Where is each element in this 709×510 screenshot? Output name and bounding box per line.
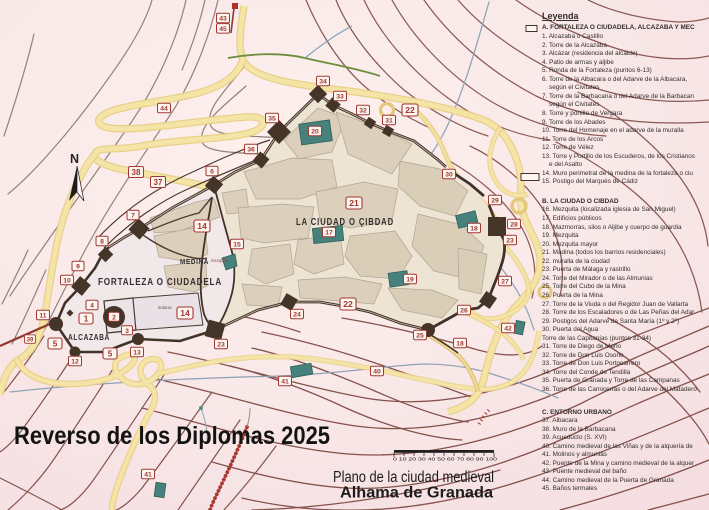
svg-text:33: 33 xyxy=(336,94,344,101)
svg-text:18: 18 xyxy=(470,226,478,233)
svg-text:30: 30 xyxy=(445,172,453,179)
svg-text:mezquita: mezquita xyxy=(211,258,229,263)
svg-text:0 10 20 30 40 50 60 70 80 90 1: 0 10 20 30 40 50 60 70 80 90 100 xyxy=(393,457,498,462)
svg-text:4: 4 xyxy=(90,303,94,310)
svg-text:22: 22 xyxy=(343,299,353,309)
svg-text:MEDINA: MEDINA xyxy=(180,257,209,266)
svg-text:17: 17 xyxy=(325,230,333,237)
svg-text:6: 6 xyxy=(210,169,214,176)
svg-text:5: 5 xyxy=(108,350,113,359)
svg-text:38: 38 xyxy=(132,168,141,177)
svg-text:35: 35 xyxy=(268,116,276,123)
svg-text:25: 25 xyxy=(416,333,424,340)
svg-text:32: 32 xyxy=(359,108,367,115)
svg-text:13: 13 xyxy=(133,350,141,357)
svg-text:10: 10 xyxy=(63,278,71,285)
svg-text:N: N xyxy=(70,152,79,166)
svg-text:42: 42 xyxy=(504,326,512,333)
svg-text:20: 20 xyxy=(311,129,319,136)
svg-text:solana: solana xyxy=(158,305,172,310)
svg-text:14: 14 xyxy=(180,308,190,318)
svg-text:8: 8 xyxy=(100,239,104,246)
svg-text:44: 44 xyxy=(160,106,168,113)
svg-text:5: 5 xyxy=(53,340,58,349)
svg-text:36: 36 xyxy=(247,147,255,154)
svg-text:31: 31 xyxy=(385,118,393,125)
svg-text:27: 27 xyxy=(501,279,509,286)
svg-text:3: 3 xyxy=(125,328,129,335)
svg-text:11: 11 xyxy=(39,313,46,320)
svg-text:28: 28 xyxy=(510,222,518,229)
svg-text:24: 24 xyxy=(293,312,301,319)
svg-text:26: 26 xyxy=(460,308,468,315)
svg-text:Plano de la ciudad medieval: Plano de la ciudad medieval xyxy=(333,469,494,486)
svg-text:2: 2 xyxy=(112,314,116,321)
svg-text:ALCAZABA: ALCAZABA xyxy=(68,333,110,342)
svg-text:Alhama de Granada: Alhama de Granada xyxy=(340,485,493,502)
svg-text:LA CIUDAD O ÇIBDAD: LA CIUDAD O ÇIBDAD xyxy=(296,217,394,228)
svg-text:34: 34 xyxy=(319,79,327,86)
svg-text:37: 37 xyxy=(154,178,163,187)
svg-text:Reverso de los Diplomas 2025: Reverso de los Diplomas 2025 xyxy=(14,422,330,450)
svg-text:43: 43 xyxy=(219,16,227,23)
svg-text:41: 41 xyxy=(281,379,289,386)
svg-text:1: 1 xyxy=(84,315,89,324)
svg-text:12: 12 xyxy=(71,359,79,366)
svg-text:29: 29 xyxy=(491,198,499,205)
svg-text:15: 15 xyxy=(233,242,241,249)
svg-text:45: 45 xyxy=(219,26,227,33)
svg-text:39: 39 xyxy=(27,337,34,343)
svg-text:21: 21 xyxy=(349,198,359,208)
svg-text:9: 9 xyxy=(76,264,80,271)
svg-text:23: 23 xyxy=(217,342,225,349)
svg-text:22: 22 xyxy=(405,105,415,115)
svg-text:FORTALEZA O CIUDADELA: FORTALEZA O CIUDADELA xyxy=(98,277,222,288)
svg-text:40: 40 xyxy=(373,369,381,376)
svg-text:7: 7 xyxy=(131,213,135,220)
svg-text:23: 23 xyxy=(506,238,514,245)
svg-text:18: 18 xyxy=(456,341,464,348)
svg-text:41: 41 xyxy=(144,472,152,479)
svg-text:14: 14 xyxy=(197,221,207,231)
svg-text:19: 19 xyxy=(406,277,414,284)
